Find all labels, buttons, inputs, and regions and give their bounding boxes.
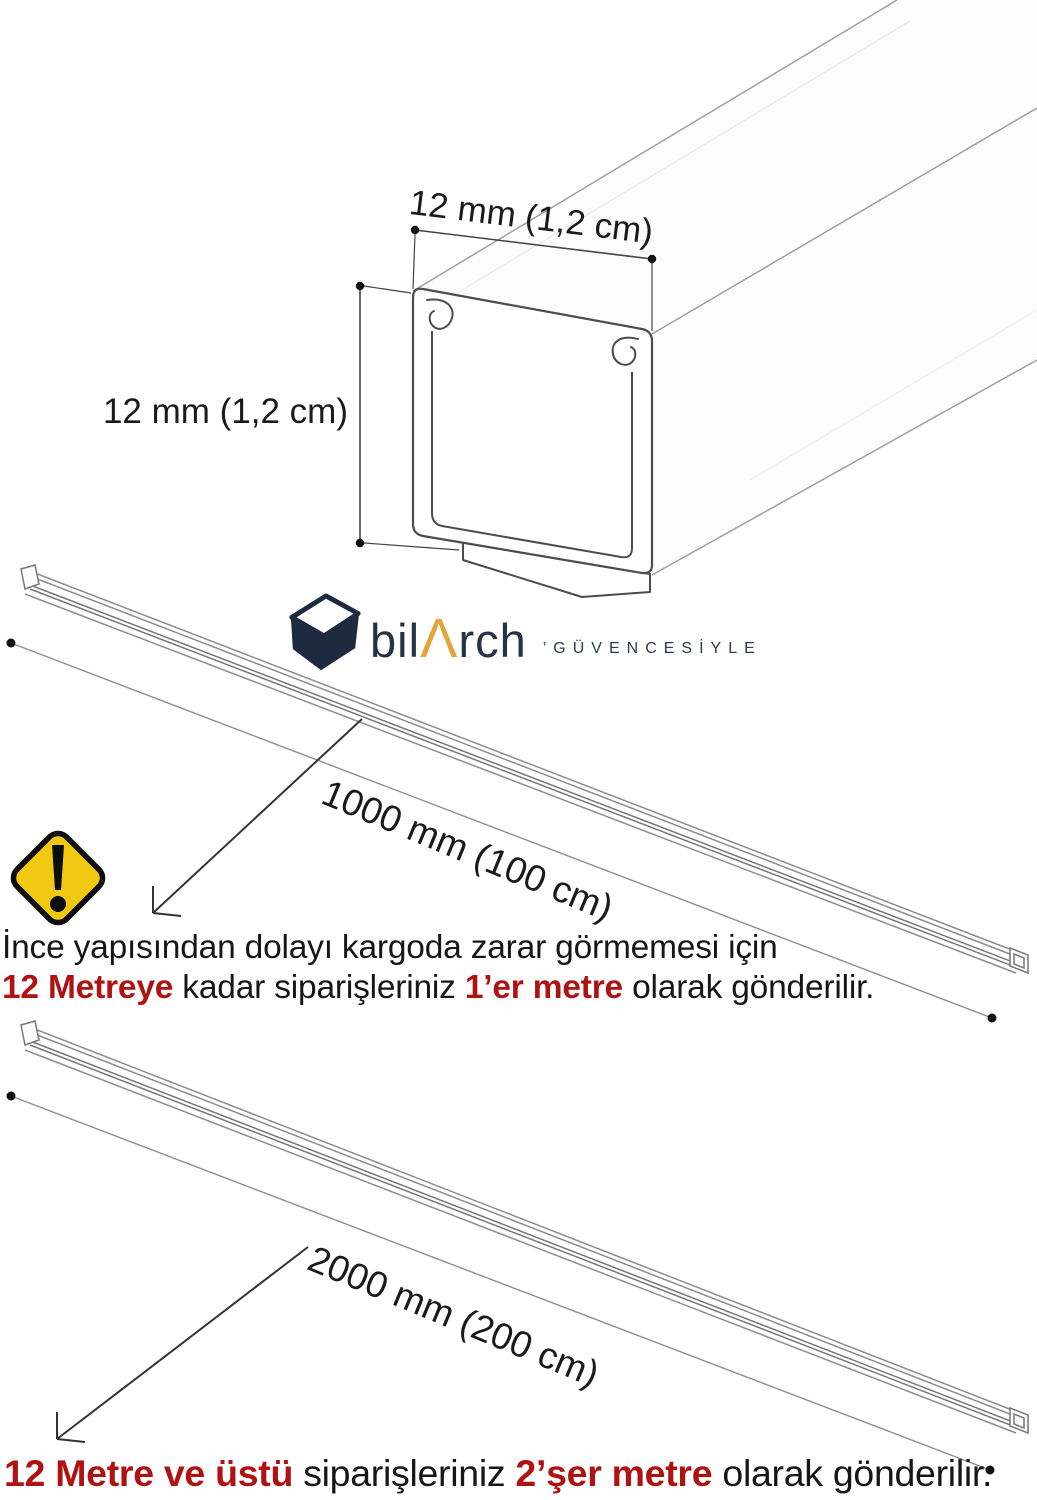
notice1-middle: kadar siparişleriniz [173,969,465,1006]
shipping-notice-2: 12 Metre ve üstü siparişleriniz 2’şer me… [4,1452,992,1495]
product-info-image: 12 mm (1,2 cm) 12 mm (1,2 cm) 1000 mm (1… [0,0,1037,1500]
notice1-highlight1: 12 Metreye [2,969,173,1006]
logo-word-bil: bil [370,614,420,667]
notice1-line1: İnce yapısından dolayı kargoda zarar gör… [2,928,874,968]
notice2-middle: siparişleriniz [293,1452,515,1494]
warning-diamond-icon [9,829,108,928]
logo-word-a: Λ [420,606,458,669]
logo-wordmark: bilΛrch [370,616,527,672]
notice1-end: olarak gönderilir. [623,969,874,1006]
brand-logo: bilΛrch ’GÜVENCESİYLE [286,592,762,672]
bar-2000mm [21,1021,1028,1433]
left-height-label: 12 mm (1,2 cm) [82,392,348,432]
notice1-highlight2: 1’er metre [465,969,623,1006]
logo-word-rch: rch [458,614,526,667]
notice2-highlight2: 2’şer metre [515,1452,712,1494]
bar-2000mm-dimension-line [7,1092,995,1475]
shipping-notice-1: İnce yapısından dolayı kargoda zarar gör… [2,928,874,1008]
notice1-line2: 12 Metreye kadar siparişleriniz 1’er met… [2,968,874,1008]
bar-1000mm-arrow [153,719,362,916]
logo-tagline: ’GÜVENCESİYLE [543,640,762,672]
notice2-highlight1: 12 Metre ve üstü [4,1452,293,1494]
cube-logo-icon [286,592,364,672]
bar-2000mm-arrow [57,1247,308,1442]
notice2-end: olarak gönderilir. [712,1452,992,1494]
duct-3d-drawing [413,0,1037,597]
